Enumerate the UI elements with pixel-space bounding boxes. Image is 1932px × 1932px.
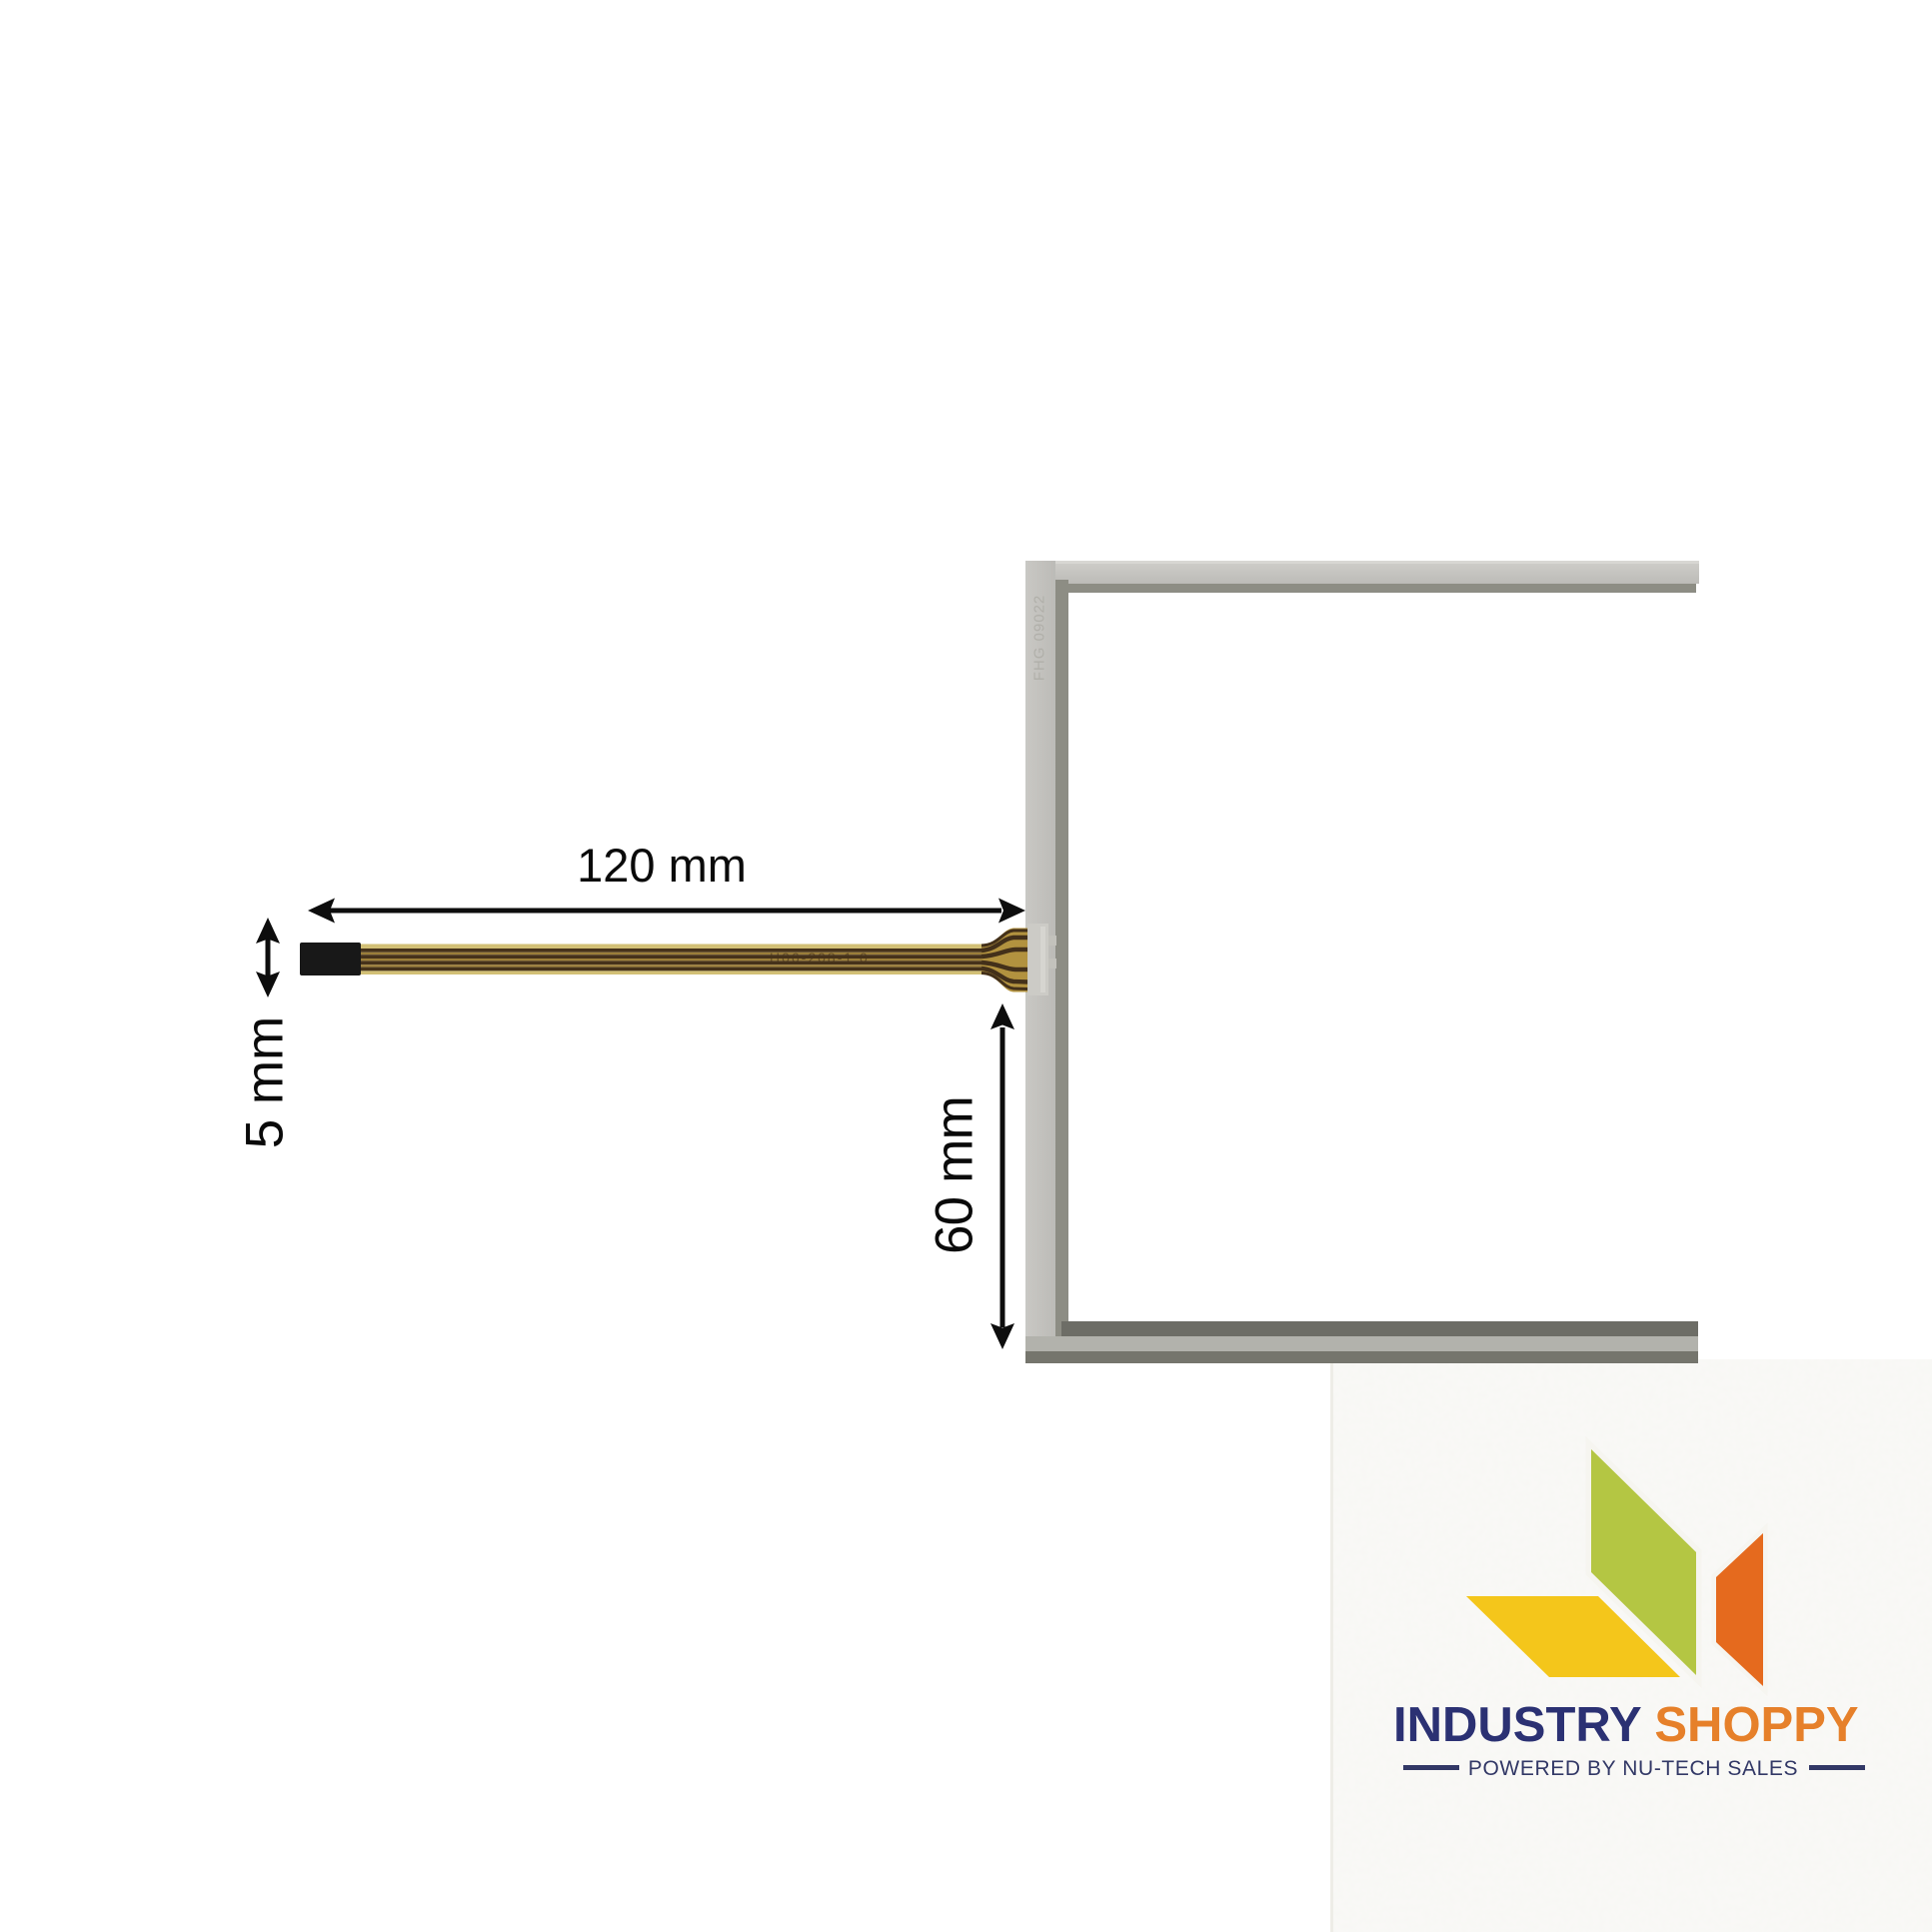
svg-text:POWERED BY NU-TECH SALES: POWERED BY NU-TECH SALES (1468, 1757, 1798, 1780)
svg-text:INDUSTRY SHOPPY: INDUSTRY SHOPPY (1393, 1698, 1859, 1752)
svg-text:H06-208-1.0: H06-208-1.0 (770, 950, 870, 966)
svg-text:5 mm: 5 mm (236, 1016, 295, 1149)
svg-text:60 mm: 60 mm (926, 1096, 984, 1254)
svg-text:FHG 09022: FHG 09022 (1031, 595, 1048, 682)
svg-text:120 mm: 120 mm (577, 839, 747, 892)
